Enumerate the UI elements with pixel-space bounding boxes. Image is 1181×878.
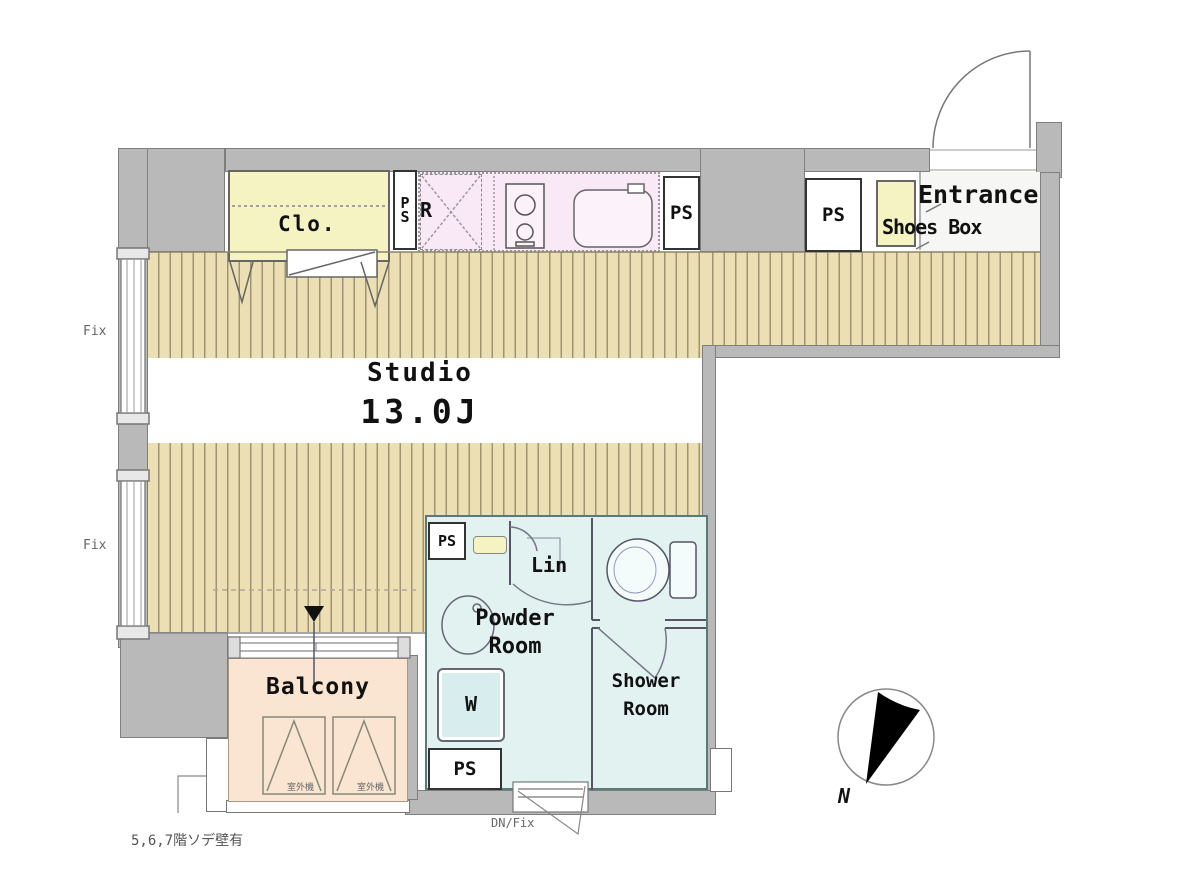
washer-label: W [437, 692, 505, 716]
note-leader-line [178, 776, 206, 813]
shoes-box-label: Shoes Box [882, 215, 981, 239]
pipe-space-2: PS [663, 176, 700, 250]
closet-label: Clo. [278, 212, 337, 236]
plan-linework: 室外機 室外機 [0, 0, 1181, 878]
balcony-panel-left: 室外機 [263, 717, 325, 794]
balcony-panel-right: 室外機 [333, 717, 395, 794]
shower-room-label-2: Room [600, 698, 692, 720]
linen-label: Lin [531, 553, 567, 577]
studio-size-label: 13.0J [330, 392, 510, 431]
ps-letter-s: S [400, 210, 409, 224]
stove-icon [506, 184, 544, 248]
balcony-panel-left-text: 室外機 [287, 781, 314, 793]
fix-label-upper: Fix [83, 324, 106, 339]
fridge-label: R [420, 198, 482, 222]
balcony-label: Balcony [252, 674, 384, 700]
right-wall-box [710, 748, 732, 792]
section-marker-triangle [304, 606, 324, 622]
fix-window-upper [121, 259, 145, 413]
toilet-icon [607, 539, 696, 601]
balcony-panel-right-text: 室外機 [357, 781, 384, 793]
pipe-space-3: PS [805, 178, 862, 252]
powder-room-label-2: Room [455, 634, 575, 659]
dn-fix-label: DN/Fix [491, 816, 534, 830]
fix-window-lower [121, 481, 145, 626]
powder-room-label-1: Powder [455, 606, 575, 631]
floor-plan: P S PS PS PS PS [0, 0, 1181, 878]
pipe-space-4: PS [428, 522, 466, 560]
shower-room-label-1: Shower [600, 670, 692, 692]
compass [838, 689, 934, 785]
pipe-space-5: PS [428, 748, 502, 790]
pipe-space-1: P S [393, 170, 417, 250]
entrance-label: Entrance [918, 180, 1038, 209]
compass-n-label: N [838, 784, 850, 808]
fix-label-lower: Fix [83, 538, 106, 553]
studio-label: Studio [330, 358, 510, 388]
sink-icon [574, 184, 652, 247]
fix-windows [117, 248, 149, 639]
balcony-sliding-door [228, 637, 410, 658]
bottom-left-note: 5,6,7階ソデ壁有 [131, 830, 243, 850]
